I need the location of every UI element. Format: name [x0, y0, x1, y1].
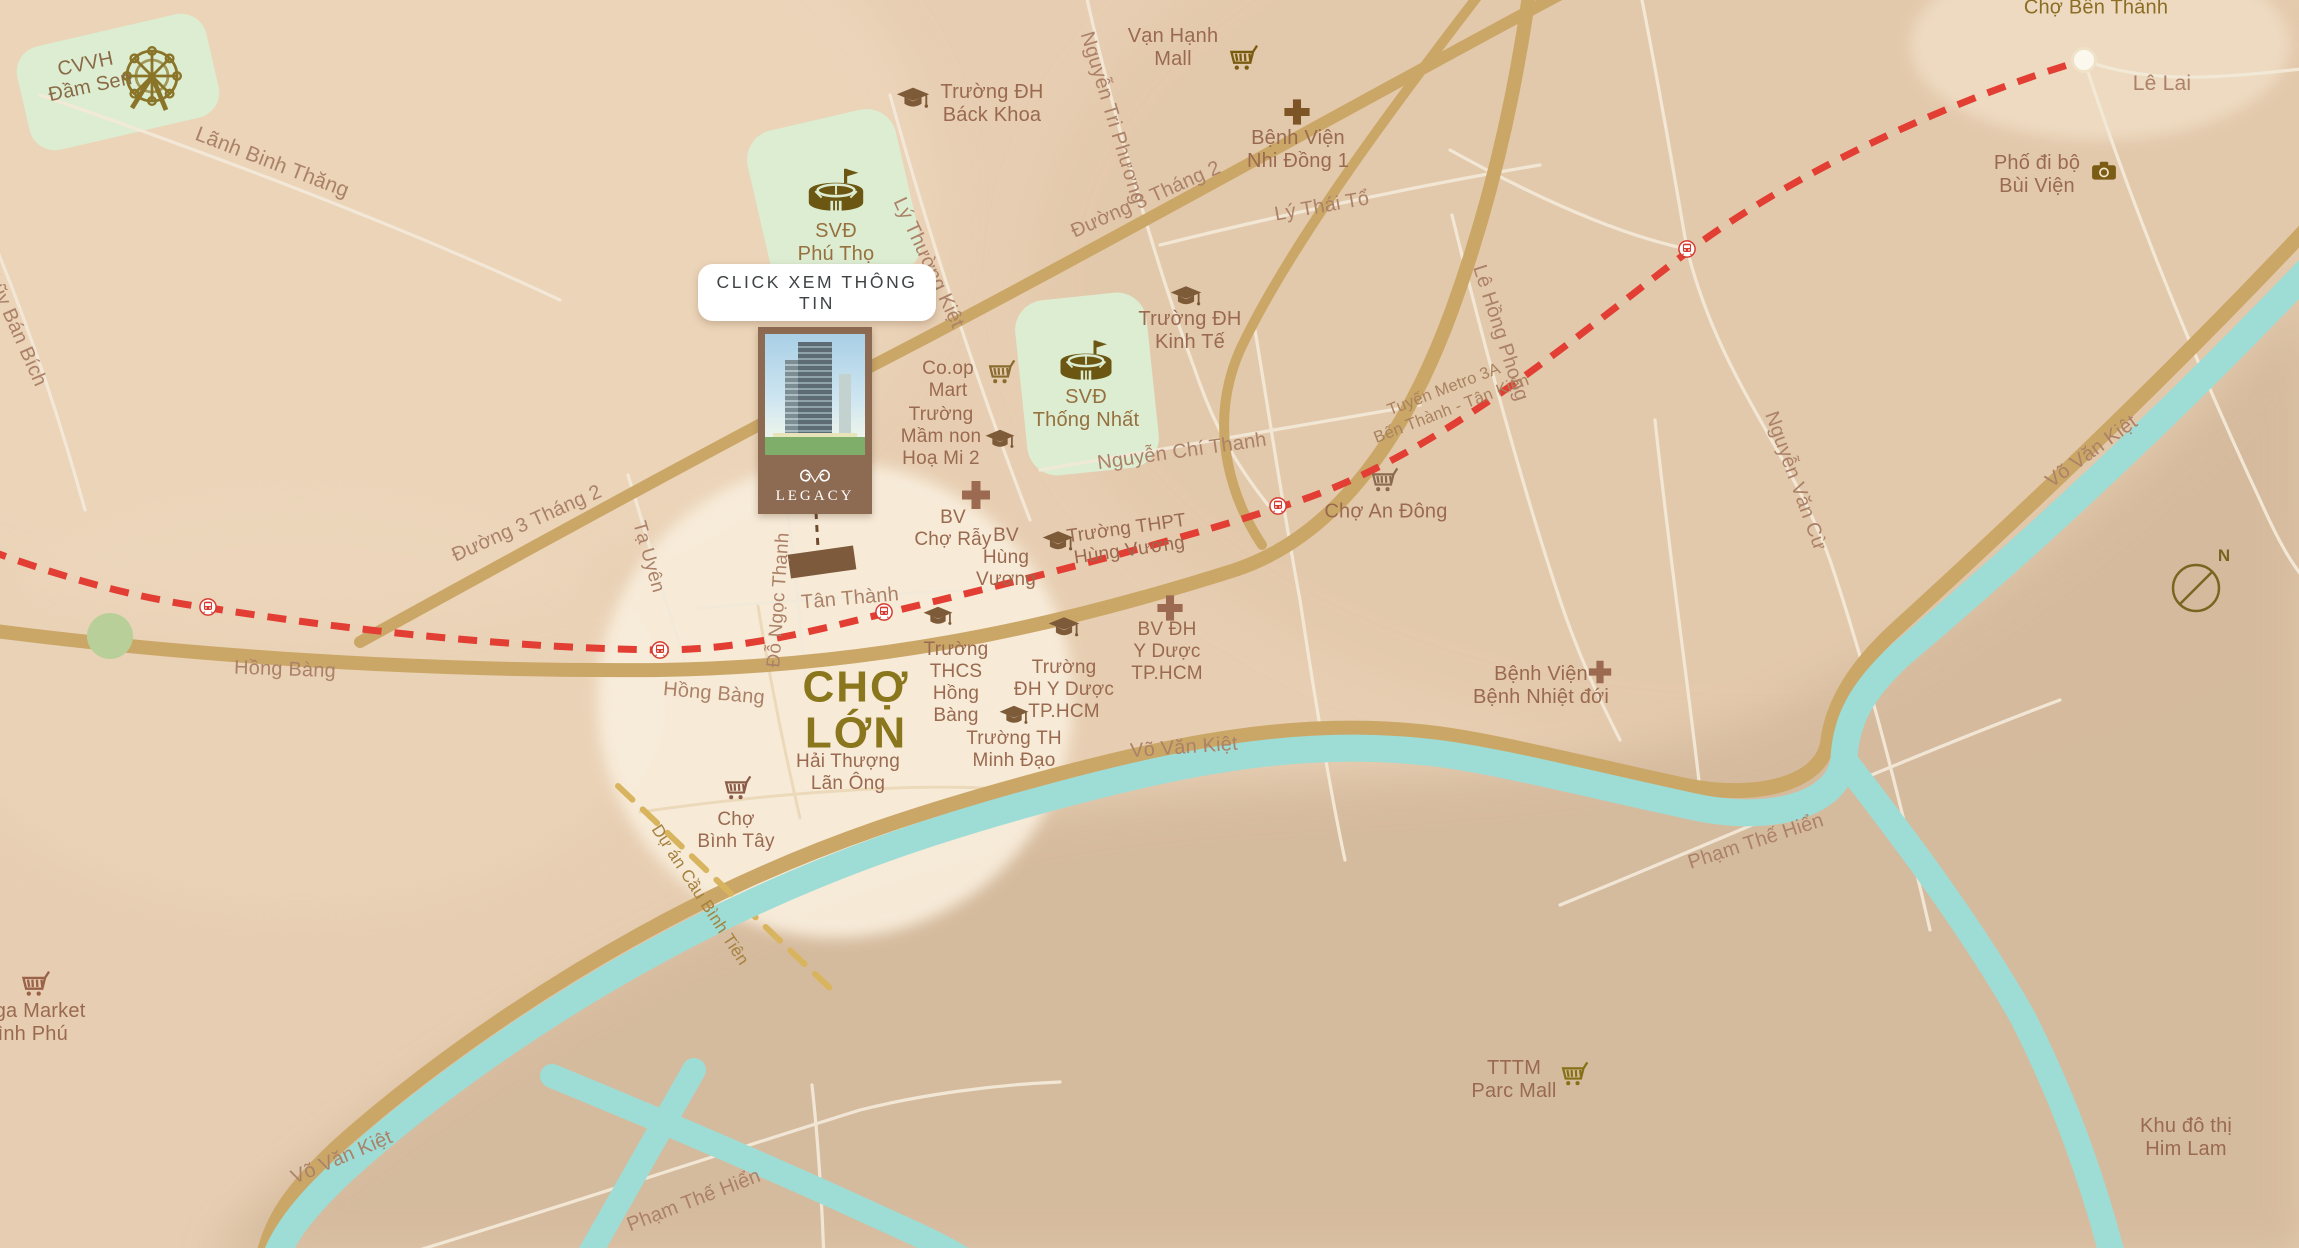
metro-terminus-dot — [2071, 47, 2097, 73]
green-dot — [87, 613, 133, 659]
click-info-button[interactable]: CLICK XEM THÔNG TIN — [698, 264, 936, 321]
compass-north-label: N — [2218, 546, 2230, 566]
legacy-logo-icon — [795, 466, 835, 488]
legacy-card-footer: LEGACY — [765, 455, 865, 507]
project-location-map: CVVH Đầm SenLãnh Binh ThăngLũy Bán BíchĐ… — [0, 0, 2299, 1248]
legacy-building-image — [765, 334, 865, 455]
building-tower-right — [839, 374, 851, 442]
map-background — [0, 0, 2299, 1248]
legacy-project-card[interactable]: LEGACY — [758, 327, 872, 514]
site-connector-dash — [816, 512, 818, 548]
building-tower-main — [798, 342, 832, 442]
building-podium-green — [765, 437, 865, 455]
building-tower-side — [785, 360, 799, 442]
legacy-project-name: LEGACY — [776, 488, 855, 505]
